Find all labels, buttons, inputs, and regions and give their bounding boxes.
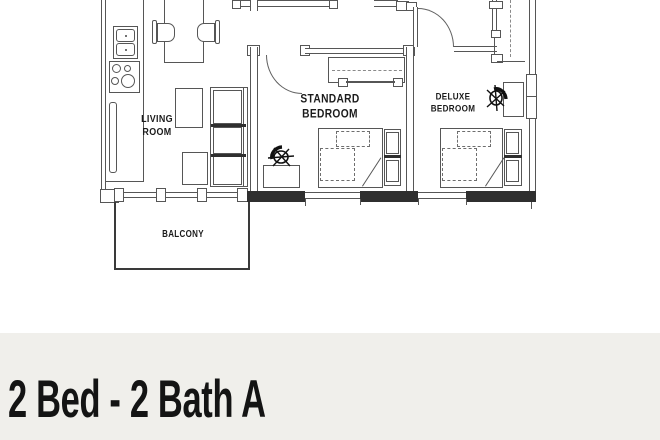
kitchen-counter-edge — [143, 0, 144, 182]
desk-chair-icon — [485, 83, 509, 113]
door-arc-deluxe-bedroom — [418, 8, 454, 47]
right-wall-window — [526, 74, 537, 97]
deluxe-top-wall — [454, 46, 497, 52]
window — [305, 192, 360, 199]
room-label-balcony: BALCONY — [162, 229, 204, 241]
window — [207, 192, 238, 198]
window — [124, 192, 157, 198]
wall-jamb — [232, 0, 241, 9]
closet-wall-line — [494, 38, 495, 55]
headboard-shelf — [386, 132, 399, 154]
sofa-cushion — [213, 90, 242, 124]
door-arc-standard-bedroom — [266, 55, 302, 94]
desk-standard — [263, 165, 300, 188]
bed-pillow — [457, 131, 491, 147]
sink-drain — [125, 49, 127, 51]
sofa-back-line — [243, 88, 244, 186]
sink-basin — [116, 29, 135, 42]
dining-chair-seat — [197, 23, 215, 42]
kitchen-counter-end — [105, 181, 144, 182]
stove-burner — [112, 64, 121, 73]
wall-tick — [360, 199, 361, 205]
bed-pillow — [336, 131, 370, 147]
wall-segment — [374, 0, 398, 7]
stove-burner — [111, 77, 119, 85]
side-table — [182, 152, 208, 185]
left-exterior-wall — [101, 0, 106, 192]
living-bedroom-wall — [250, 47, 258, 192]
wall-jamb — [489, 1, 503, 9]
dining-chair-seat — [157, 23, 175, 42]
room-label-living-room: LIVING ROOM — [141, 113, 173, 139]
window — [166, 192, 198, 198]
wall-jamb — [329, 0, 338, 9]
dining-chair-back — [215, 20, 220, 44]
bed-blanket — [320, 148, 355, 181]
unit-title-band: 2 Bed - 2 Bath A — [0, 333, 660, 440]
window — [418, 192, 466, 199]
sofa-divider — [211, 154, 246, 157]
room-label-standard-bedroom: STANDARD BEDROOM — [300, 91, 359, 120]
closet-rod-dashed — [332, 70, 402, 71]
unit-title: 2 Bed - 2 Bath A — [8, 372, 266, 428]
standard-bedroom-top-wall — [305, 48, 406, 54]
wall-stub — [250, 0, 258, 11]
closet-shelf-line — [497, 61, 525, 62]
floorplan-drawing: LIVING ROOM STANDARD BEDROOM DELUXE BEDR… — [0, 0, 660, 333]
exterior-wall-segment — [466, 191, 536, 202]
sofa-cushion — [213, 156, 242, 185]
exterior-wall-segment — [247, 191, 305, 202]
bed-blanket — [442, 148, 477, 181]
floorplan-card: LIVING ROOM STANDARD BEDROOM DELUXE BEDR… — [0, 0, 660, 440]
desk-chair-icon — [266, 144, 296, 168]
wall-tick — [466, 199, 467, 205]
wall-jamb — [491, 30, 501, 38]
closet-door-track — [346, 81, 395, 83]
window-mullion — [114, 188, 124, 202]
exterior-wall-segment — [360, 191, 418, 202]
sink-drain — [125, 35, 127, 37]
kitchen-counter-run — [109, 102, 117, 173]
sofa-divider — [211, 124, 246, 127]
coffee-table — [175, 88, 203, 128]
headboard-shelf — [506, 160, 519, 182]
window-mullion — [197, 188, 207, 202]
closet-rod-dashed — [510, 0, 511, 57]
headboard-divider — [504, 155, 522, 158]
window-mullion — [156, 188, 166, 202]
sink-basin — [116, 43, 135, 56]
room-label-deluxe-bedroom: DELUXE BEDROOM — [431, 91, 476, 114]
stove-burner — [121, 74, 135, 88]
sofa-cushion — [213, 127, 242, 154]
stove-burner — [124, 65, 131, 72]
headboard-shelf — [506, 132, 519, 154]
right-wall-window — [526, 96, 537, 119]
wall-tick — [531, 202, 532, 209]
headboard-divider — [384, 155, 401, 158]
headboard-shelf — [386, 160, 399, 182]
bedroom-dividing-wall — [406, 47, 414, 192]
wall-tick — [305, 199, 306, 206]
wall-tick — [418, 199, 419, 205]
